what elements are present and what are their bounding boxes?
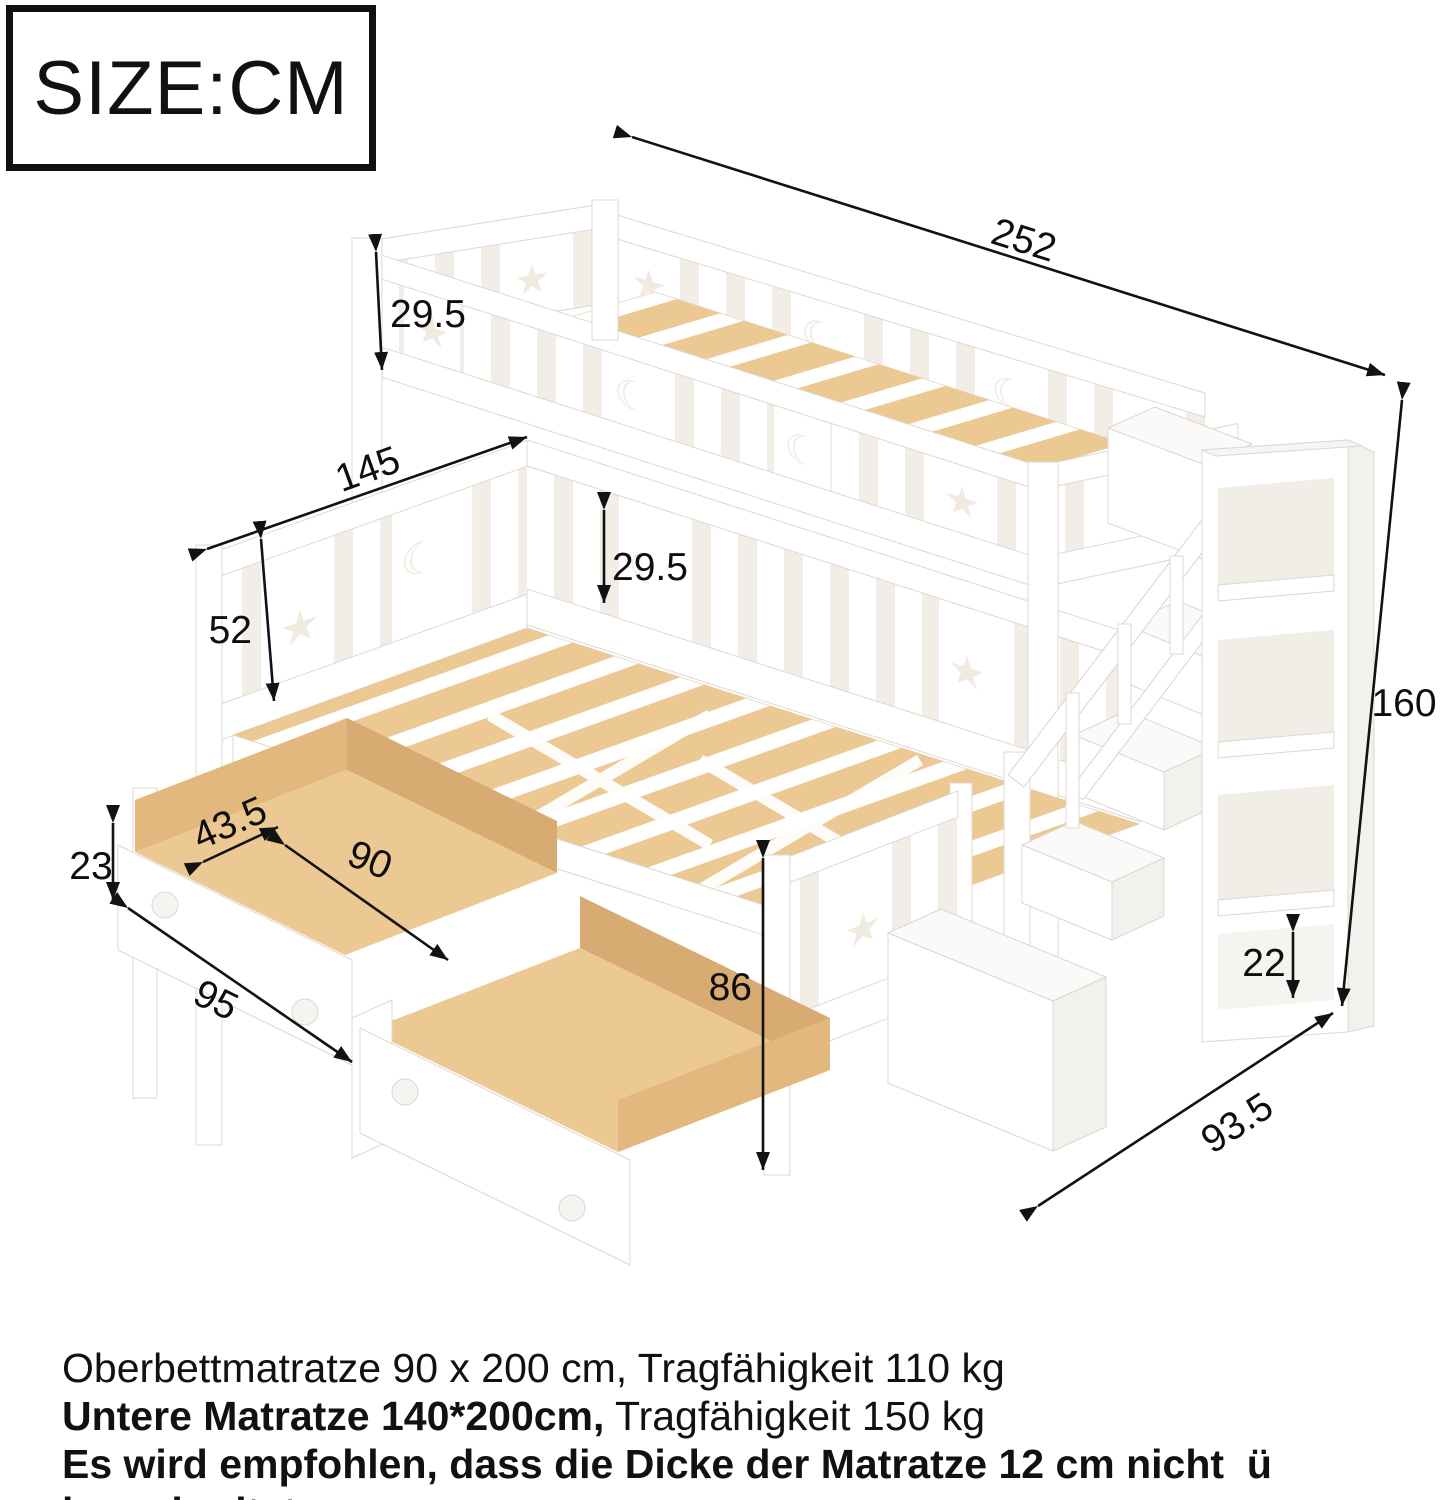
dim-label-252: 252: [986, 210, 1061, 271]
dim-label-160: 160: [1371, 682, 1436, 725]
upper-far-left-post: [592, 200, 618, 340]
product-dimension-diagram: SIZE:CM ★: [0, 0, 1440, 1500]
note-line-2-bold: Untere Matratze 140*200cm,: [62, 1393, 604, 1439]
dim-label-86: 86: [709, 966, 752, 1009]
dim-label-52: 52: [209, 609, 252, 652]
drawer-knob: [152, 892, 178, 918]
shelf-side: [1348, 440, 1374, 1032]
drawer-knob: [559, 1195, 585, 1221]
star-cutout-icon: ★: [514, 254, 550, 305]
mattress-notes: Oberbettmatratze 90 x 200 cm, Tragfähigk…: [62, 1344, 1432, 1500]
drawer-knob: [392, 1079, 418, 1105]
drawer-knob: [292, 999, 318, 1025]
bunk-bed-illustration: ★ ☾ ☾ ★ ★: [0, 0, 1440, 1500]
dim-label-29.5-lower: 29.5: [612, 546, 688, 589]
stair-box-side: [1053, 977, 1106, 1151]
handrail-baluster: [1170, 556, 1183, 654]
note-line-1: Oberbettmatratze 90 x 200 cm, Tragfähigk…: [62, 1344, 1432, 1392]
note-line-2: Untere Matratze 140*200cm, Tragfähigkeit…: [62, 1392, 1432, 1440]
handrail-baluster: [1118, 624, 1131, 724]
shelf-opening: [1218, 785, 1334, 900]
note-line-3: Es wird empfohlen, dass die Dicke der Ma…: [62, 1440, 1432, 1500]
dim-label-22: 22: [1242, 942, 1285, 985]
handrail-baluster: [1066, 693, 1079, 828]
dim-label-23: 23: [69, 845, 112, 888]
dim-label-29.5-upper: 29.5: [390, 293, 466, 336]
bunk-bed: ★ ☾ ☾ ★ ★: [118, 200, 1374, 1265]
shelf-opening: [1218, 630, 1334, 742]
note-line-2-rest: Tragfähigkeit 150 kg: [604, 1393, 985, 1439]
shelf-opening: [1218, 478, 1334, 585]
